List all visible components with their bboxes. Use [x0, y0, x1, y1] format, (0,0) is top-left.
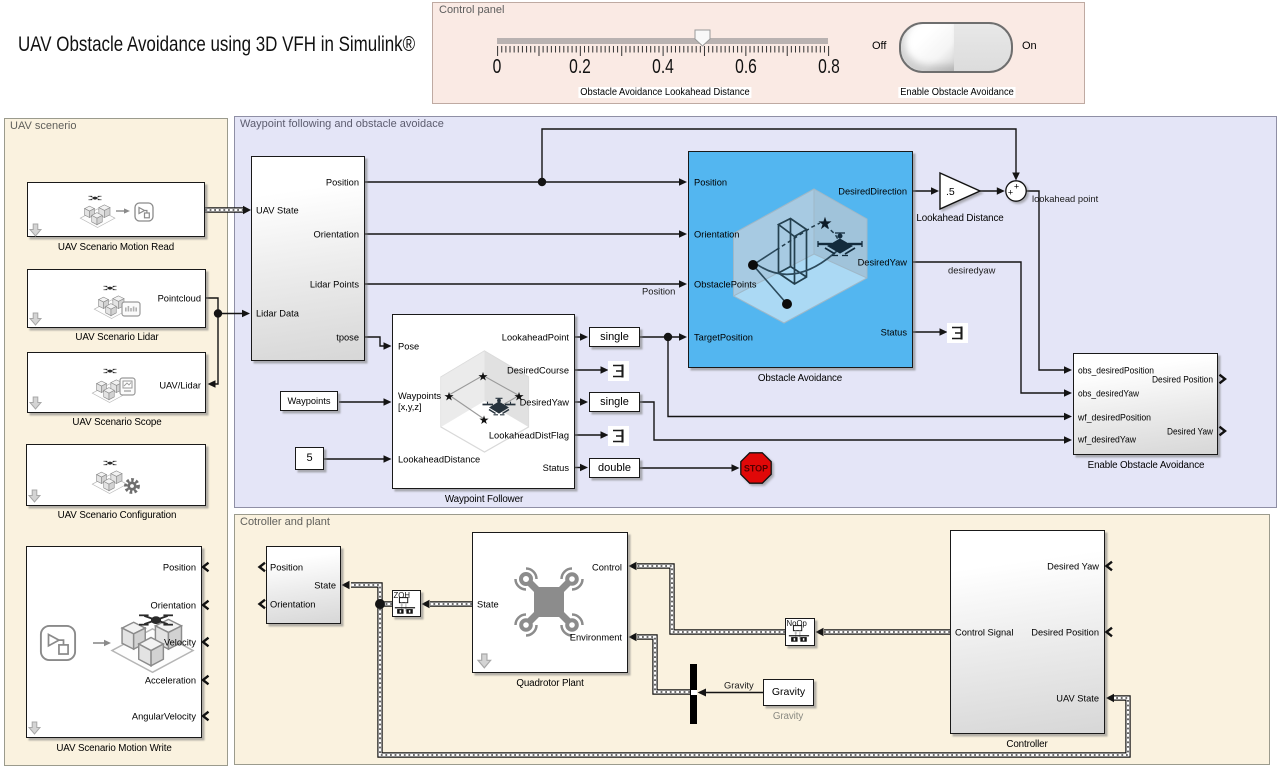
svg-text:★: ★: [817, 214, 832, 233]
svg-text:★: ★: [478, 370, 489, 384]
svg-text:Status: Status: [543, 463, 570, 473]
svg-text:STOP: STOP: [744, 464, 768, 474]
svg-text:LookaheadDistance: LookaheadDistance: [398, 455, 480, 465]
svg-text:Lidar Data: Lidar Data: [256, 309, 300, 319]
svg-text:desiredyaw: desiredyaw: [948, 265, 996, 276]
svg-text:Position: Position: [694, 178, 727, 188]
svg-text:obs_desiredPosition: obs_desiredPosition: [1078, 366, 1154, 376]
svg-text:UAV/Lidar: UAV/Lidar: [159, 381, 201, 391]
svg-text:Position: Position: [642, 286, 675, 297]
svg-text:Desired Yaw: Desired Yaw: [1167, 427, 1213, 437]
svg-text:Desired Position: Desired Position: [1152, 375, 1213, 385]
svg-text:wf_desiredYaw: wf_desiredYaw: [1077, 435, 1136, 445]
svg-text:Pointcloud: Pointcloud: [158, 294, 201, 304]
svg-text:Position: Position: [326, 178, 359, 188]
svg-text:DesiredDirection: DesiredDirection: [838, 187, 907, 197]
svg-text:+: +: [1008, 188, 1013, 198]
svg-text:+: +: [1014, 182, 1019, 192]
svg-text:★: ★: [479, 413, 490, 427]
svg-text:State: State: [314, 581, 336, 591]
svg-text:Orientation: Orientation: [314, 230, 359, 240]
svg-text:Lidar Points: Lidar Points: [310, 280, 359, 290]
svg-text:ObstaclePoints: ObstaclePoints: [694, 280, 757, 290]
svg-text:Orientation: Orientation: [694, 230, 739, 240]
svg-text:.5: .5: [946, 186, 955, 198]
svg-text:DesiredYaw: DesiredYaw: [858, 258, 908, 268]
svg-text:Position: Position: [270, 563, 303, 573]
svg-text:LookaheadPoint: LookaheadPoint: [502, 333, 570, 343]
svg-text:Environment: Environment: [570, 633, 623, 643]
svg-text:tpose: tpose: [336, 333, 359, 343]
svg-text:Acceleration: Acceleration: [145, 676, 196, 686]
svg-text:DesiredCourse: DesiredCourse: [507, 366, 569, 376]
svg-text:Control: Control: [592, 563, 622, 573]
svg-text:Orientation: Orientation: [270, 600, 315, 610]
svg-text:UAV State: UAV State: [256, 206, 299, 216]
svg-text:wf_desiredPosition: wf_desiredPosition: [1077, 413, 1151, 423]
svg-text:lookahead point: lookahead point: [1032, 193, 1099, 204]
svg-text:Status: Status: [881, 328, 908, 338]
svg-text:★: ★: [444, 390, 455, 404]
svg-text:DesiredYaw: DesiredYaw: [520, 398, 570, 408]
svg-text:AngularVelocity: AngularVelocity: [132, 712, 196, 722]
svg-text:Desired Yaw: Desired Yaw: [1047, 562, 1099, 572]
svg-text:TargetPosition: TargetPosition: [694, 333, 753, 343]
svg-text:LookaheadDistFlag: LookaheadDistFlag: [489, 431, 569, 441]
svg-text:Position: Position: [163, 563, 196, 573]
svg-text:Orientation: Orientation: [151, 601, 196, 611]
svg-text:[x,y,z]: [x,y,z]: [398, 402, 422, 412]
svg-text:Gravity: Gravity: [724, 680, 754, 691]
svg-text:Waypoints: Waypoints: [398, 391, 441, 401]
svg-text:Desired Position: Desired Position: [1031, 628, 1099, 638]
svg-text:Velocity: Velocity: [164, 638, 196, 648]
svg-text:Control Signal: Control Signal: [955, 628, 1013, 638]
svg-text:Pose: Pose: [398, 342, 419, 352]
svg-text:State: State: [477, 600, 499, 610]
svg-text:obs_desiredYaw: obs_desiredYaw: [1078, 389, 1139, 399]
svg-text:UAV State: UAV State: [1056, 694, 1099, 704]
